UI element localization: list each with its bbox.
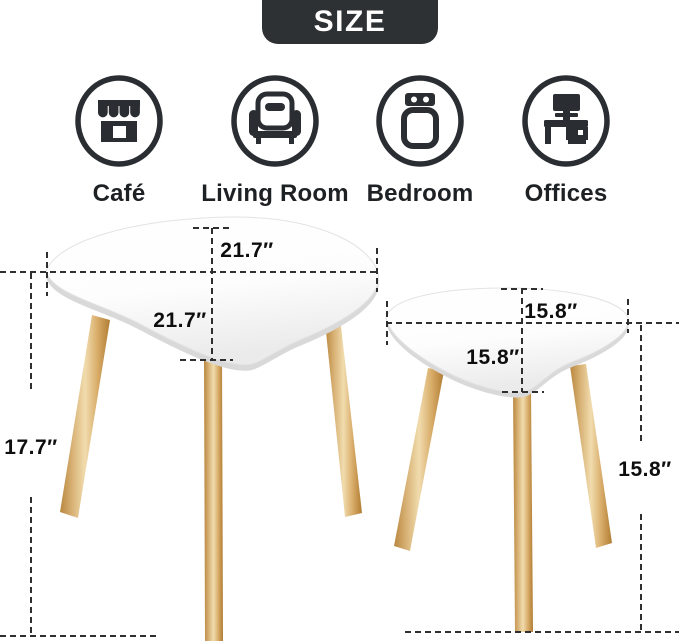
- large-table-leg-left: [60, 315, 110, 518]
- large-table-leg-right: [325, 322, 362, 517]
- large-width-tick-right: [376, 248, 378, 292]
- large-depth-label: 21.7″: [152, 309, 208, 333]
- large-height-dimension-line-upper: [30, 273, 32, 392]
- large-depth-tick-bottom: [180, 359, 233, 361]
- small-table-leg-right: [570, 364, 612, 548]
- large-width-tick-left: [46, 252, 48, 296]
- small-width-label: 15.8″: [524, 300, 578, 324]
- product-size-infographic: SIZE Café Living Room: [0, 0, 679, 641]
- large-height-label: 17.7″: [3, 436, 59, 460]
- small-depth-dimension-line: [521, 288, 523, 392]
- small-height-baseline: [405, 631, 679, 633]
- small-depth-tick-top: [501, 288, 543, 290]
- small-table-leg-left: [394, 368, 444, 551]
- large-table-leg-center: [204, 355, 223, 641]
- large-width-dimension-line: [0, 271, 378, 273]
- large-width-label: 21.7″: [219, 239, 275, 263]
- small-tabletop: [386, 288, 628, 393]
- small-width-tick-right: [627, 299, 629, 333]
- large-height-dimension-line-lower: [30, 497, 32, 636]
- small-width-tick-left: [386, 301, 388, 345]
- small-height-label: 15.8″: [616, 458, 674, 482]
- small-height-dimension-line-upper: [640, 325, 642, 443]
- large-depth-dimension-line: [211, 228, 213, 360]
- small-depth-label: 15.8″: [466, 346, 520, 370]
- small-height-dimension-line-lower: [640, 514, 642, 631]
- large-height-baseline: [0, 635, 158, 637]
- small-depth-tick-bottom: [502, 391, 544, 393]
- small-table-leg-center: [513, 390, 533, 632]
- large-depth-tick-top: [193, 227, 230, 229]
